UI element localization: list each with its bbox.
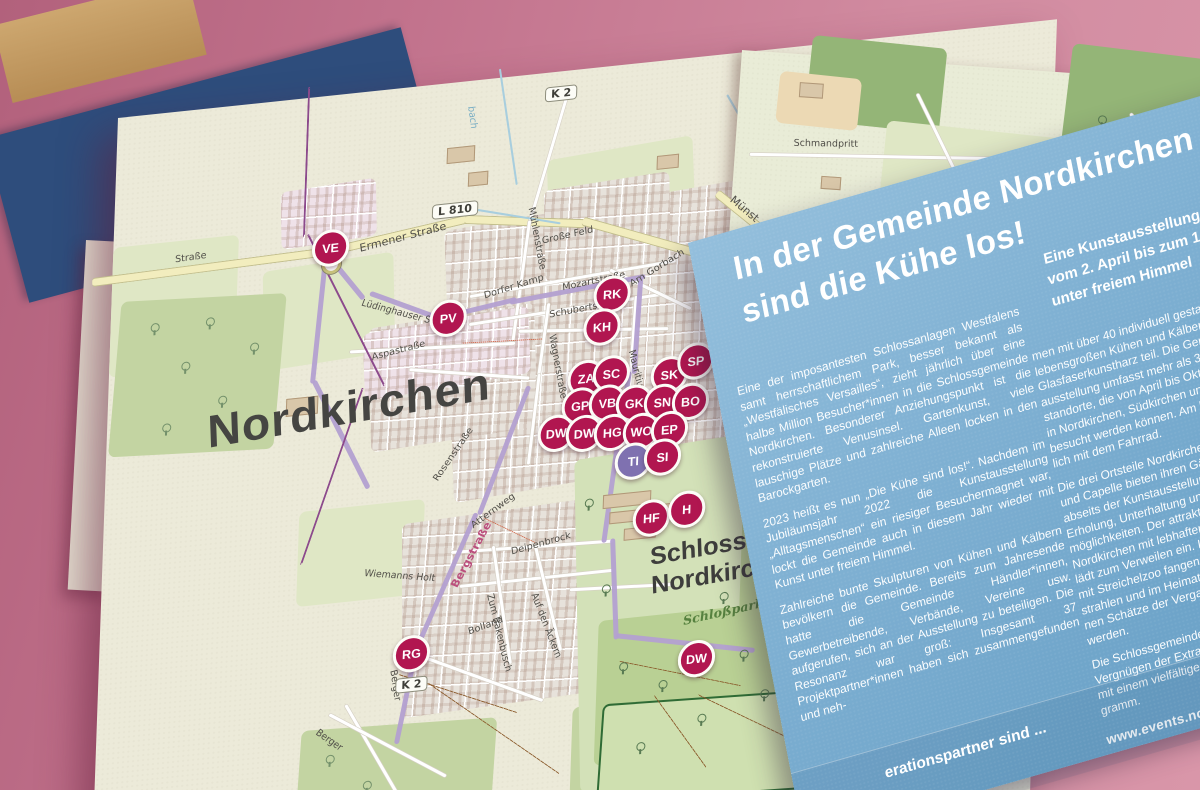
building [447,145,476,164]
road-badge: K 2 [545,84,578,102]
building [821,176,842,190]
street-label: Schmandpritt [794,138,859,150]
stream-label: bach [465,105,479,130]
building [657,154,680,170]
landuse-area [293,717,497,790]
building [468,171,489,187]
landuse-area [775,71,862,131]
stream-blue [499,69,518,185]
building [799,82,824,99]
photo-canvas: StraßeErmener StraßeLüdinghauser StraßeD… [0,0,1200,790]
